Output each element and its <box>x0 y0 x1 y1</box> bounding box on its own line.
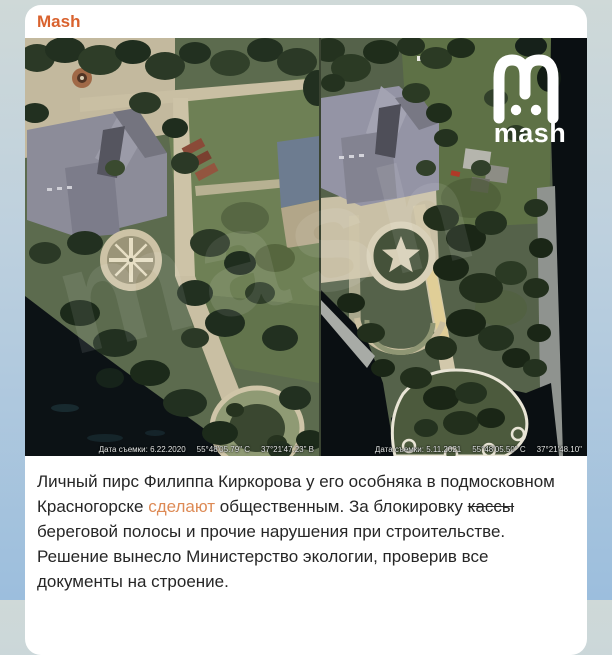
telegram-post-card: Mash <box>25 5 587 655</box>
post-strikethrough-word: кассы <box>468 497 514 516</box>
post-header: Mash <box>25 5 587 38</box>
mansion-roof-after <box>321 86 439 206</box>
latitude-before: 55°48'05.79" С <box>197 445 250 454</box>
post-text-part2: общественным. За блокировку <box>215 497 468 516</box>
satellite-image-after[interactable]: mash Дата съемки: 5.11.2021 55°48'05.50"… <box>321 38 587 456</box>
latitude-after: 55°48'05.50" С <box>472 445 525 454</box>
satellite-photo-comparison: Дата съемки: 6.22.2020 55°48'05.79" С 37… <box>25 38 587 456</box>
capture-date-after: Дата съемки: 5.11.2021 <box>375 445 461 454</box>
channel-name[interactable]: Mash <box>37 12 80 32</box>
satellite-scene-before <box>25 38 319 456</box>
satellite-image-before[interactable]: Дата съемки: 6.22.2020 55°48'05.79" С 37… <box>25 38 319 456</box>
post-text-part3: береговой полосы и прочие нарушения при … <box>37 522 505 591</box>
capture-date-before: Дата съемки: 6.22.2020 <box>99 445 186 454</box>
mash-m-icon <box>485 52 569 124</box>
post-link[interactable]: сделают <box>148 497 215 516</box>
mash-logo-text: mash <box>485 120 575 147</box>
telegram-chat-background: { "header": { "channel_name": "Mash" }, … <box>0 0 612 600</box>
longitude-before: 37°21'47.23" В <box>261 445 314 454</box>
longitude-after: 37°21'48.10" <box>537 445 582 454</box>
post-text: Личный пирс Филиппа Киркорова у его особ… <box>25 456 587 594</box>
capture-info-after: Дата съемки: 5.11.2021 55°48'05.50" С 37… <box>375 445 582 454</box>
mash-logo: mash <box>485 52 575 147</box>
capture-info-before: Дата съемки: 6.22.2020 55°48'05.79" С 37… <box>99 445 314 454</box>
mansion-roof-before <box>27 108 167 238</box>
compass-garden-before <box>100 229 162 291</box>
star-garden-after <box>370 225 432 287</box>
